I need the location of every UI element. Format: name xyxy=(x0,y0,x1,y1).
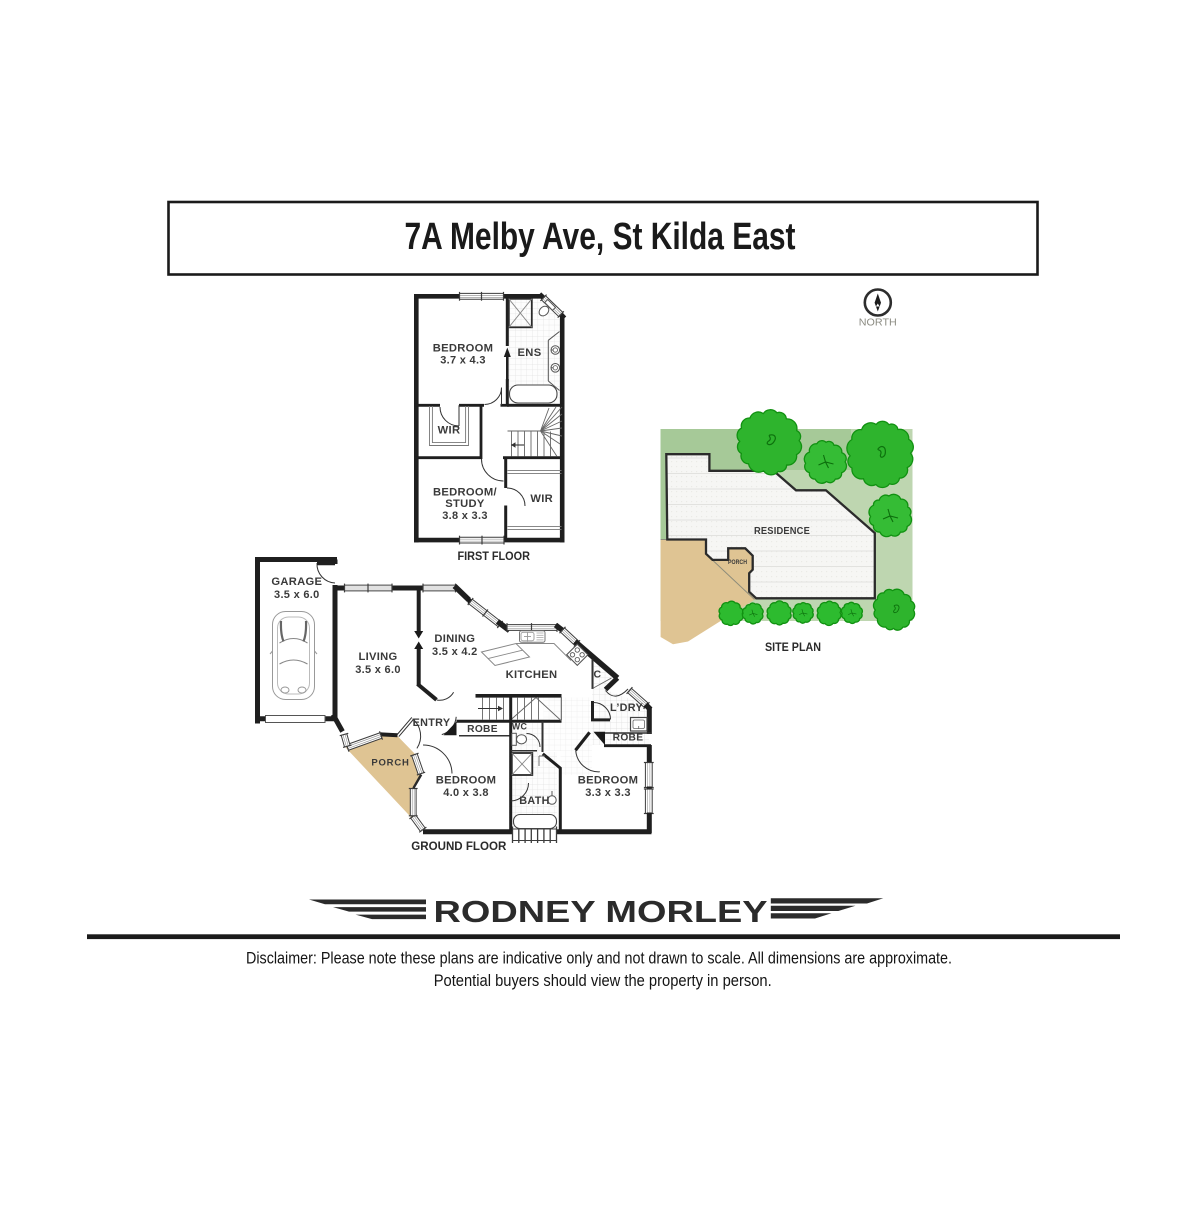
svg-text:L’DRY: L’DRY xyxy=(610,702,643,714)
svg-text:KITCHEN: KITCHEN xyxy=(506,669,558,681)
svg-text:C: C xyxy=(594,669,602,681)
svg-text:ENS: ENS xyxy=(518,347,542,359)
svg-text:ENTRY: ENTRY xyxy=(413,717,451,729)
svg-text:3.5 x 6.0: 3.5 x 6.0 xyxy=(355,664,401,676)
svg-text:RESIDENCE: RESIDENCE xyxy=(754,526,810,537)
svg-text:3.7 x 4.3: 3.7 x 4.3 xyxy=(440,355,486,367)
svg-text:NORTH: NORTH xyxy=(859,317,897,329)
svg-text:LIVING: LIVING xyxy=(358,651,397,663)
svg-text:3.3 x 3.3: 3.3 x 3.3 xyxy=(585,787,631,799)
svg-text:WC: WC xyxy=(512,722,528,732)
svg-text:GROUND FLOOR: GROUND FLOOR xyxy=(411,839,506,853)
svg-text:Potential buyers should view t: Potential buyers should view the propert… xyxy=(434,971,772,990)
svg-text:SITE PLAN: SITE PLAN xyxy=(765,640,821,654)
svg-text:ROBE: ROBE xyxy=(613,733,644,744)
svg-text:3.5 x 6.0: 3.5 x 6.0 xyxy=(274,589,320,601)
svg-text:PORCH: PORCH xyxy=(371,758,409,769)
svg-text:STUDY: STUDY xyxy=(445,498,485,510)
svg-text:FIRST FLOOR: FIRST FLOOR xyxy=(457,549,530,563)
svg-text:4.0 x 3.8: 4.0 x 3.8 xyxy=(443,787,489,799)
svg-text:BEDROOM/: BEDROOM/ xyxy=(433,487,497,499)
svg-text:ROBE: ROBE xyxy=(467,724,498,735)
svg-text:WIR: WIR xyxy=(530,493,553,505)
svg-text:3.5 x 4.2: 3.5 x 4.2 xyxy=(432,646,478,658)
svg-text:RODNEY MORLEY: RODNEY MORLEY xyxy=(434,894,768,929)
svg-text:BEDROOM: BEDROOM xyxy=(433,343,494,355)
svg-text:Disclaimer: Please note these: Disclaimer: Please note these plans are … xyxy=(246,949,952,968)
svg-text:BEDROOM: BEDROOM xyxy=(578,775,639,787)
svg-text:BATH: BATH xyxy=(519,795,549,807)
svg-text:DINING: DINING xyxy=(434,633,475,645)
svg-text:PORCH: PORCH xyxy=(728,559,747,566)
svg-text:GARAGE: GARAGE xyxy=(271,576,322,588)
svg-text:WIR: WIR xyxy=(438,425,461,437)
svg-text:BEDROOM: BEDROOM xyxy=(436,775,497,787)
svg-text:7A Melby Ave, St Kilda East: 7A Melby Ave, St Kilda East xyxy=(405,216,796,258)
svg-text:3.8 x 3.3: 3.8 x 3.3 xyxy=(442,510,488,522)
